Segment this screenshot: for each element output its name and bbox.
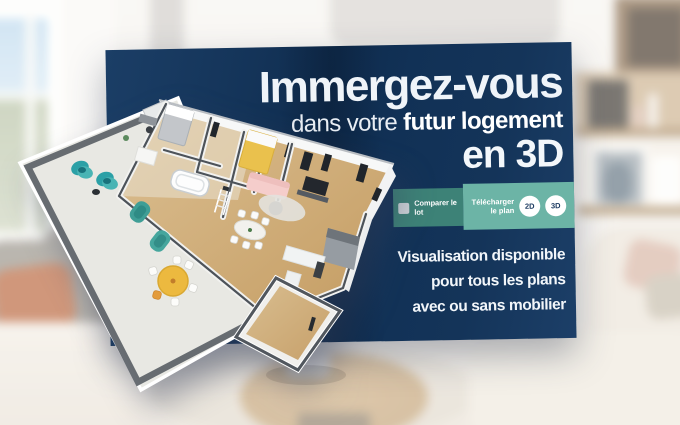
download-plan-control: Télécharger le plan 2D 3D (463, 182, 575, 230)
promo-banner: Immergez-vous dans votre futur logement … (0, 0, 680, 425)
side-table (92, 189, 100, 195)
floorplan-3d-render (6, 80, 404, 420)
download-label-line2: le plan (490, 206, 514, 215)
compare-lot-label: Comparer le lot (414, 198, 463, 217)
tagline-line3: avec ou sans mobilier (398, 292, 566, 320)
download-label-line1: Télécharger (472, 197, 515, 207)
tagline: Visualisation disponible pour tous les p… (397, 242, 566, 320)
tagline-line1: Visualisation disponible (397, 242, 565, 270)
download-3d-button[interactable]: 3D (545, 195, 566, 216)
plan-toolbar: Comparer le lot Télécharger le plan 2D 3… (393, 186, 575, 227)
download-2d-button[interactable]: 2D (519, 195, 540, 216)
download-plan-label: Télécharger le plan (472, 197, 515, 216)
tagline-line2: pour tous les plans (398, 267, 566, 295)
plant (123, 135, 129, 141)
subheadline-bold: futur logement (403, 106, 563, 136)
headline-3d: en 3D (462, 132, 564, 178)
